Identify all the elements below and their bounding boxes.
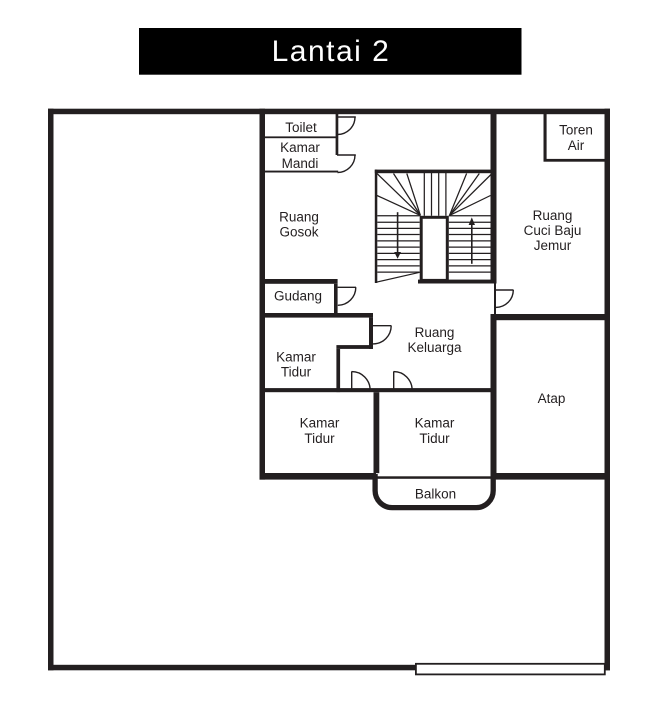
svg-text:Kamar: Kamar: [276, 349, 316, 364]
svg-text:Mandi: Mandi: [282, 156, 319, 171]
svg-text:Jemur: Jemur: [534, 238, 572, 253]
svg-text:Tidur: Tidur: [304, 431, 335, 446]
svg-text:Ruang: Ruang: [279, 210, 319, 225]
svg-text:Toren: Toren: [559, 122, 593, 137]
svg-text:Lantai 2: Lantai 2: [272, 35, 391, 68]
svg-text:Gudang: Gudang: [274, 288, 322, 303]
svg-text:Kamar: Kamar: [415, 415, 455, 430]
svg-text:Ruang: Ruang: [415, 325, 455, 340]
svg-text:Cuci Baju: Cuci Baju: [524, 223, 582, 238]
svg-text:Atap: Atap: [538, 391, 566, 406]
svg-text:Kamar: Kamar: [280, 140, 320, 155]
svg-text:Air: Air: [568, 138, 585, 153]
svg-text:Ruang: Ruang: [533, 208, 573, 223]
svg-text:Keluarga: Keluarga: [407, 340, 462, 355]
svg-text:Balkon: Balkon: [415, 487, 456, 502]
svg-text:Kamar: Kamar: [300, 415, 340, 430]
svg-text:Tidur: Tidur: [281, 364, 312, 379]
svg-text:Gosok: Gosok: [279, 225, 318, 240]
svg-text:Toilet: Toilet: [285, 120, 317, 135]
svg-text:Tidur: Tidur: [419, 431, 450, 446]
